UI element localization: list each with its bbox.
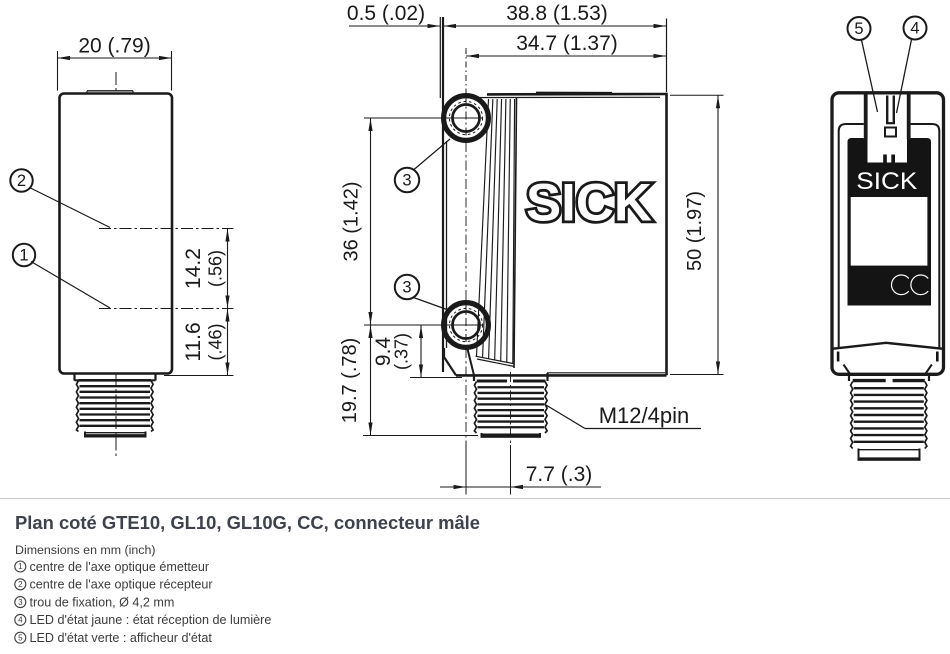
svg-text:trou de fixation, Ø 4,2 mm: trou de fixation, Ø 4,2 mm bbox=[30, 595, 175, 609]
svg-text:2: 2 bbox=[17, 172, 26, 190]
svg-text:Dimensions en mm (inch): Dimensions en mm (inch) bbox=[15, 543, 155, 557]
svg-text:7.7 (.3): 7.7 (.3) bbox=[526, 463, 593, 486]
svg-text:0.5 (.02): 0.5 (.02) bbox=[347, 2, 425, 25]
svg-text:50 (1.97): 50 (1.97) bbox=[684, 191, 706, 271]
svg-text:5: 5 bbox=[854, 20, 863, 38]
svg-text:4: 4 bbox=[910, 20, 919, 38]
svg-text:(.56): (.56) bbox=[206, 250, 226, 287]
svg-text:5: 5 bbox=[18, 633, 23, 642]
svg-text:38.8 (1.53): 38.8 (1.53) bbox=[506, 2, 608, 25]
svg-text:3: 3 bbox=[402, 279, 411, 297]
svg-text:14.2: 14.2 bbox=[182, 248, 205, 289]
svg-text:SICK: SICK bbox=[856, 168, 917, 195]
svg-text:LED d'état verte : afficheur d: LED d'état verte : afficheur d'état bbox=[30, 631, 213, 645]
svg-text:3: 3 bbox=[18, 598, 23, 607]
svg-text:2: 2 bbox=[18, 580, 23, 589]
svg-text:centre de l'axe optique émette: centre de l'axe optique émetteur bbox=[30, 560, 210, 574]
svg-text:4: 4 bbox=[18, 616, 23, 625]
svg-text:centre de l'axe optique récept: centre de l'axe optique récepteur bbox=[30, 578, 213, 592]
svg-text:(.46): (.46) bbox=[206, 323, 226, 360]
svg-text:SICK: SICK bbox=[526, 174, 652, 233]
svg-text:(.37): (.37) bbox=[392, 333, 412, 370]
svg-text:1: 1 bbox=[18, 562, 23, 571]
svg-text:19.7 (.78): 19.7 (.78) bbox=[339, 338, 361, 424]
svg-text:34.7 (1.37): 34.7 (1.37) bbox=[516, 32, 618, 55]
svg-text:1: 1 bbox=[19, 247, 28, 265]
svg-text:LED d'état jaune : état récept: LED d'état jaune : état réception de lum… bbox=[30, 613, 272, 627]
svg-text:3: 3 bbox=[402, 172, 411, 190]
svg-text:Plan coté GTE10, GL10, GL10G,: Plan coté GTE10, GL10, GL10G, CC, connec… bbox=[15, 512, 480, 533]
svg-text:11.6: 11.6 bbox=[182, 322, 205, 361]
svg-text:M12/4pin: M12/4pin bbox=[599, 403, 690, 428]
svg-text:20 (.79): 20 (.79) bbox=[78, 35, 150, 58]
svg-text:36 (1.42): 36 (1.42) bbox=[341, 181, 363, 261]
